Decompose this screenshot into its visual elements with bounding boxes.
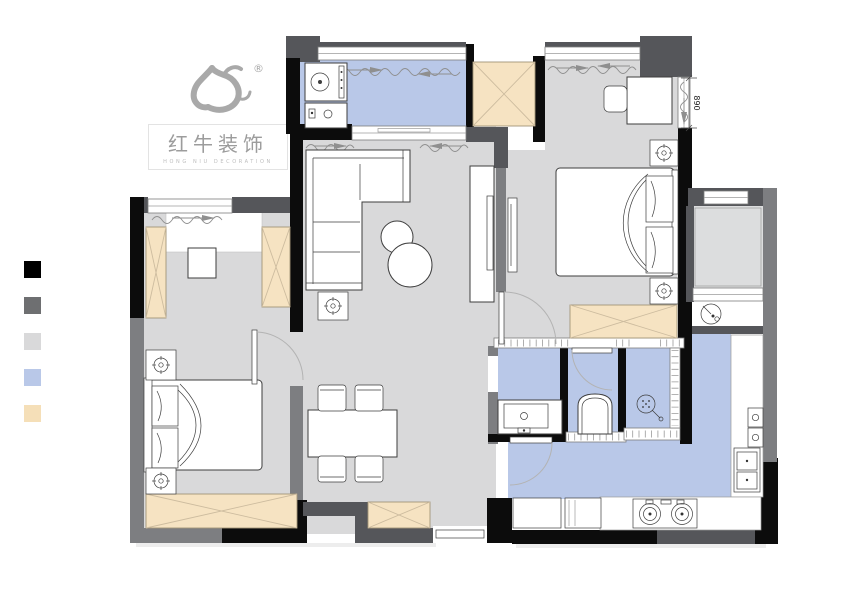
floorplan-page: ® 红牛装饰 HONG NIU DECORATION — [0, 0, 860, 608]
entry-door — [436, 530, 484, 538]
sofa-side-table — [318, 292, 348, 320]
second-bed — [144, 378, 262, 472]
balcony-cabinet — [473, 62, 535, 126]
utility-room-floor — [693, 206, 763, 290]
toilet — [578, 394, 612, 434]
nightstand-bottom — [146, 468, 176, 494]
master-nightstand-top — [650, 140, 678, 166]
master-bed — [556, 168, 678, 276]
master-wardrobe — [570, 305, 677, 338]
laundry-balcony — [305, 63, 347, 128]
second-bedroom-wardrobe-bottom — [146, 494, 297, 528]
balcony-window — [318, 47, 466, 60]
water-heater — [701, 304, 721, 324]
desk-chair — [604, 86, 627, 112]
fridge — [513, 498, 561, 528]
balcony-sink — [305, 103, 347, 128]
vanity-sink — [498, 400, 562, 434]
tv-cabinet — [470, 166, 494, 302]
balcony-sliding-door — [352, 126, 466, 140]
utility-top-window — [704, 191, 748, 204]
bedroom-desk — [188, 248, 216, 278]
utility-bottom-window — [693, 288, 763, 301]
wall-shadow — [136, 543, 436, 547]
dining-table — [308, 410, 397, 457]
master-nightstand-bottom — [650, 278, 678, 304]
washing-machine — [305, 63, 347, 101]
second-bedroom-window — [148, 199, 232, 213]
base-cabinet — [565, 498, 601, 528]
kitchen-sink — [734, 448, 760, 492]
second-bedroom-wardrobe-right — [262, 227, 290, 307]
wall-shadow — [516, 544, 766, 548]
floor-plan-svg: 890 — [0, 0, 860, 608]
master-top-window — [545, 47, 640, 60]
master-tv-cabinet — [508, 198, 517, 272]
gas-stove — [633, 499, 697, 528]
coffee-table-large — [388, 243, 432, 287]
master-desk — [627, 77, 672, 124]
shoe-cabinet — [368, 502, 430, 528]
nightstand-top — [146, 350, 176, 380]
second-bedroom-wardrobe-left — [146, 227, 166, 318]
dimension-label: 890 — [692, 95, 701, 110]
